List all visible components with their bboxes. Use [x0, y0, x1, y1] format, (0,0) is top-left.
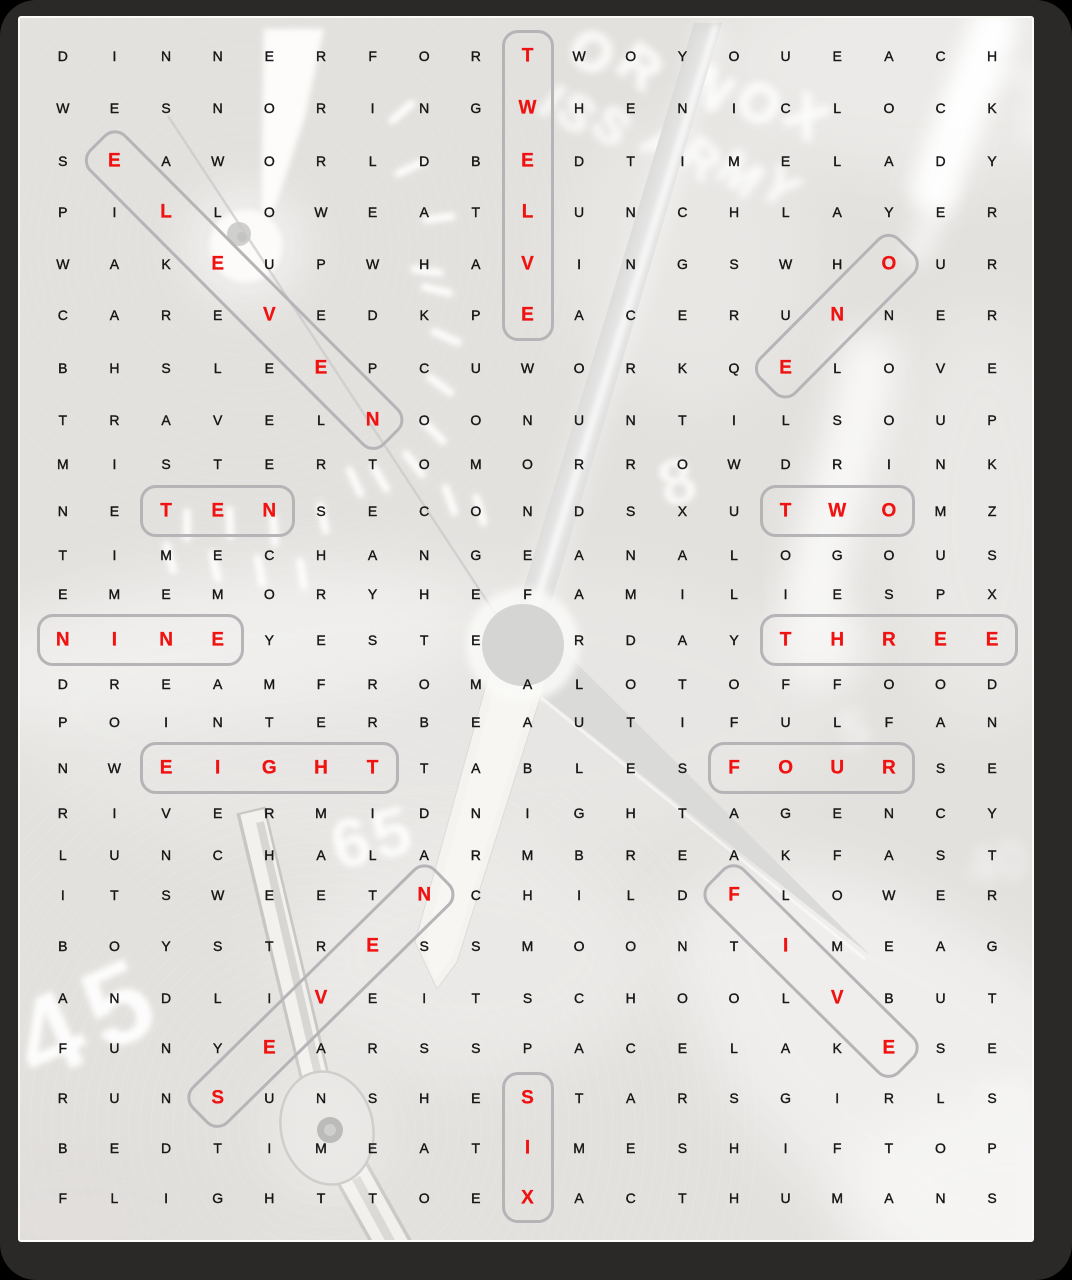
svg-text:35: 35: [972, 1066, 1034, 1129]
